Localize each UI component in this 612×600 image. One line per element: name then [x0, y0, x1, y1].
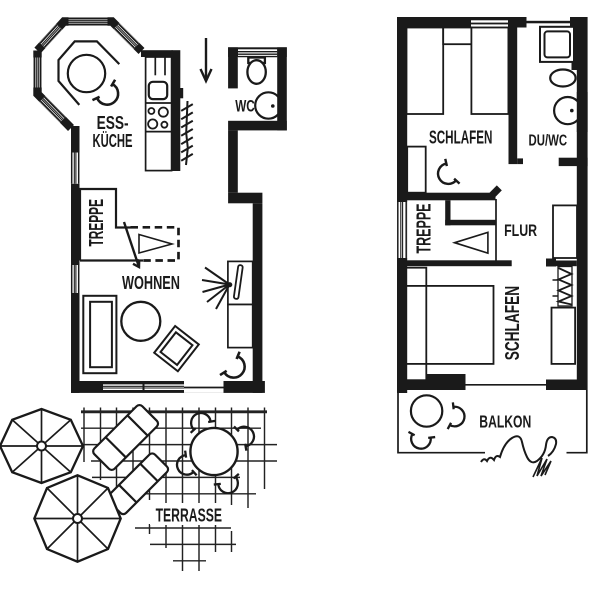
- svg-text:FLUR: FLUR: [504, 221, 537, 240]
- svg-text:KÜCHE: KÜCHE: [93, 131, 133, 151]
- svg-text:BALKON: BALKON: [479, 411, 531, 431]
- svg-text:DU/WC: DU/WC: [529, 132, 568, 149]
- svg-text:TREPPE: TREPPE: [414, 204, 436, 254]
- svg-text:WOHNEN: WOHNEN: [122, 273, 180, 293]
- svg-text:TERRASSE: TERRASSE: [156, 506, 222, 526]
- svg-text:WC: WC: [235, 97, 255, 116]
- svg-text:SCHLAFEN: SCHLAFEN: [502, 286, 524, 360]
- svg-text:ESS-: ESS-: [97, 113, 129, 133]
- svg-text:SCHLAFEN: SCHLAFEN: [429, 128, 492, 148]
- svg-text:TREPPE: TREPPE: [86, 199, 108, 247]
